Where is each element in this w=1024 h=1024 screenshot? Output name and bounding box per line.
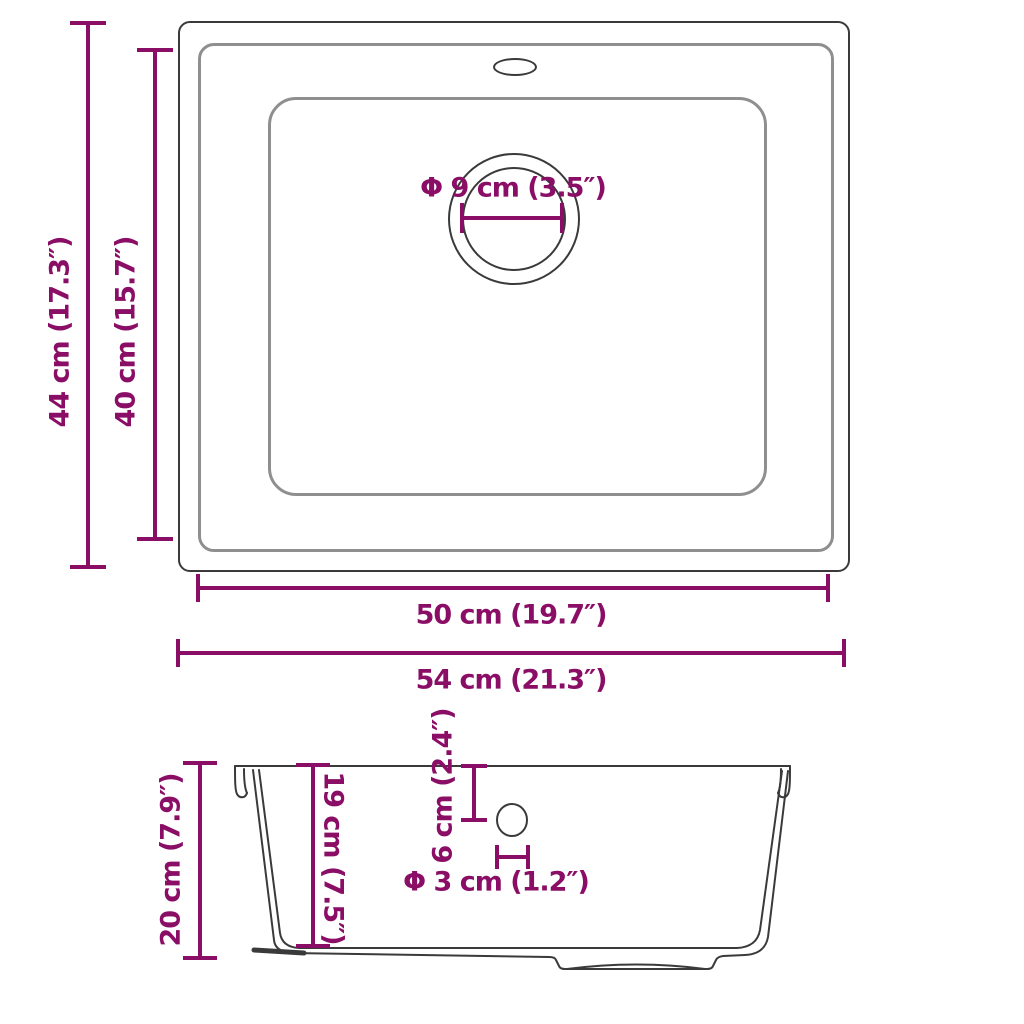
dim-tick: [842, 639, 846, 667]
dim-tick: [495, 845, 499, 869]
dim-tick: [296, 944, 330, 948]
dim-label-bowl-depth: 19 cm (7.5″): [320, 771, 347, 944]
dim-line-inner-width: [198, 586, 828, 590]
sink-dimension-diagram: 44 cm (17.3″) 40 cm (15.7″) Φ 9 cm (3.5″…: [0, 0, 1024, 1024]
dim-label-inner-width: 50 cm (19.7″): [416, 602, 607, 629]
dim-tick: [461, 818, 487, 822]
side-left-lip-inner: [244, 769, 247, 793]
dim-line-drain-offset: [472, 766, 476, 820]
dim-label-drain-diameter: Φ 9 cm (3.5″): [420, 175, 606, 202]
dim-tick: [460, 203, 464, 233]
tap-hole: [493, 58, 537, 76]
dim-label-drain-hole: Φ 3 cm (1.2″): [403, 869, 589, 896]
dim-label-inner-height: 40 cm (15.7″): [113, 237, 140, 428]
dim-tick: [70, 565, 106, 569]
dim-tick: [196, 574, 200, 602]
dim-tick: [183, 761, 217, 765]
side-right-lip-inner: [778, 769, 781, 793]
side-drain-hole: [497, 804, 527, 836]
dim-tick: [183, 956, 217, 960]
dim-tick: [137, 537, 173, 541]
dim-line-bowl-depth: [311, 765, 315, 948]
dim-line-inner-height: [153, 50, 157, 540]
dim-tick: [461, 764, 487, 768]
dim-line-outer-height: [86, 23, 90, 568]
dim-label-total-height: 20 cm (7.9″): [158, 773, 185, 946]
dim-tick: [137, 48, 173, 52]
dim-line-total-height: [198, 763, 202, 960]
dim-tick: [176, 639, 180, 667]
side-left-foot: [254, 950, 304, 953]
dim-label-drain-offset: 6 cm (2.4″): [430, 708, 457, 863]
dim-label-outer-height: 44 cm (17.3″): [47, 237, 74, 428]
dim-tick: [296, 763, 330, 767]
dim-label-outer-width: 54 cm (21.3″): [416, 667, 607, 694]
dim-line-drain-diameter: [462, 216, 562, 220]
dim-line-outer-width: [178, 651, 846, 655]
dim-tick: [826, 574, 830, 602]
dim-tick: [70, 21, 106, 25]
dim-tick: [560, 203, 564, 233]
dim-tick: [526, 845, 530, 869]
